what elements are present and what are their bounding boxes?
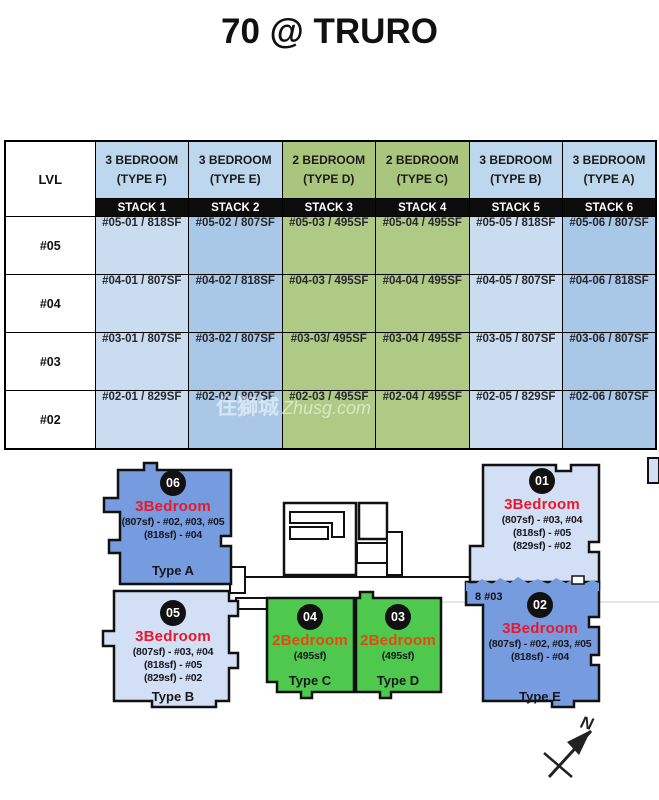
bedroom-type-header: 3 BEDROOM(TYPE F) xyxy=(95,141,189,199)
level-row: #04#04-01 / 807SF#04-02 / 818SF#04-03 / … xyxy=(5,275,656,333)
level-label: #02 xyxy=(5,391,95,450)
tear-notch xyxy=(572,576,584,584)
unit-cell: #05-06 / 807SF xyxy=(563,217,657,275)
block-04-footprint xyxy=(267,598,354,698)
edge-fragment xyxy=(648,458,659,483)
stack-header: STACK 1 xyxy=(95,199,189,217)
block-01-footprint xyxy=(470,465,599,589)
unit-cell: #05-03 / 495SF xyxy=(282,217,376,275)
unit-cell: #03-03/ 495SF xyxy=(282,333,376,391)
stack-availability-table: LVL3 BEDROOM(TYPE F)3 BEDROOM(TYPE E)2 B… xyxy=(4,140,657,450)
unit-cell: #03-06 / 807SF xyxy=(563,333,657,391)
unit-cell: #04-03 / 495SF xyxy=(282,275,376,333)
unit-cell: #04-04 / 495SF xyxy=(376,275,470,333)
unit-cell: #02-03 / 495SF xyxy=(282,391,376,450)
stack-plan-page: 70 @ TRURO LVL3 BEDROOM(TYPE F)3 BEDROOM… xyxy=(0,0,659,800)
unit-cell: #04-02 / 818SF xyxy=(189,275,283,333)
block-05-footprint xyxy=(103,591,238,707)
bedroom-type-header: 3 BEDROOM(TYPE A) xyxy=(563,141,657,199)
tear-artifact-text: 8 #03 xyxy=(475,591,503,603)
stack-header: STACK 2 xyxy=(189,199,283,217)
unit-cell: #05-04 / 495SF xyxy=(376,217,470,275)
stack-header: STACK 6 xyxy=(563,199,657,217)
level-row: #02#02-01 / 829SF#02-02 / 807SF#02-03 / … xyxy=(5,391,656,450)
north-compass-icon: N xyxy=(544,713,596,777)
unit-cell: #05-02 / 807SF xyxy=(189,217,283,275)
block-06-footprint xyxy=(104,463,231,584)
site-plan-drawing: 8 #03 N xyxy=(0,450,659,800)
corridor-connector xyxy=(236,598,268,609)
bedroom-type-header: 2 BEDROOM(TYPE C) xyxy=(376,141,470,199)
unit-cell: #04-01 / 807SF xyxy=(95,275,189,333)
level-row: #03#03-01 / 807SF#03-02 / 807SF#03-03/ 4… xyxy=(5,333,656,391)
unit-cell: #02-04 / 495SF xyxy=(376,391,470,450)
bedroom-type-header: 2 BEDROOM(TYPE D) xyxy=(282,141,376,199)
page-title: 70 @ TRURO xyxy=(0,12,659,52)
level-column-header: LVL xyxy=(5,141,95,217)
stack-header: STACK 5 xyxy=(469,199,563,217)
compass-n-label: N xyxy=(579,713,596,735)
level-label: #03 xyxy=(5,333,95,391)
unit-cell: #03-04 / 495SF xyxy=(376,333,470,391)
bedroom-type-header: 3 BEDROOM(TYPE B) xyxy=(469,141,563,199)
bedroom-type-header: 3 BEDROOM(TYPE E) xyxy=(189,141,283,199)
unit-cell: #04-05 / 807SF xyxy=(469,275,563,333)
unit-cell: #02-01 / 829SF xyxy=(95,391,189,450)
unit-cell: #02-02 / 807SF xyxy=(189,391,283,450)
unit-cell: #02-05 / 829SF xyxy=(469,391,563,450)
unit-cell: #04-06 / 818SF xyxy=(563,275,657,333)
stack-header: STACK 4 xyxy=(376,199,470,217)
unit-cell: #03-02 / 807SF xyxy=(189,333,283,391)
level-label: #05 xyxy=(5,217,95,275)
level-label: #04 xyxy=(5,275,95,333)
block-03-footprint xyxy=(356,592,441,698)
level-row: #05#05-01 / 818SF#05-02 / 807SF#05-03 / … xyxy=(5,217,656,275)
unit-cell: #03-01 / 807SF xyxy=(95,333,189,391)
unit-cell: #05-05 / 818SF xyxy=(469,217,563,275)
unit-cell: #03-05 / 807SF xyxy=(469,333,563,391)
unit-cell: #05-01 / 818SF xyxy=(95,217,189,275)
core-floor-plan xyxy=(284,503,402,575)
unit-cell: #02-06 / 807SF xyxy=(563,391,657,450)
stack-header: STACK 3 xyxy=(282,199,376,217)
